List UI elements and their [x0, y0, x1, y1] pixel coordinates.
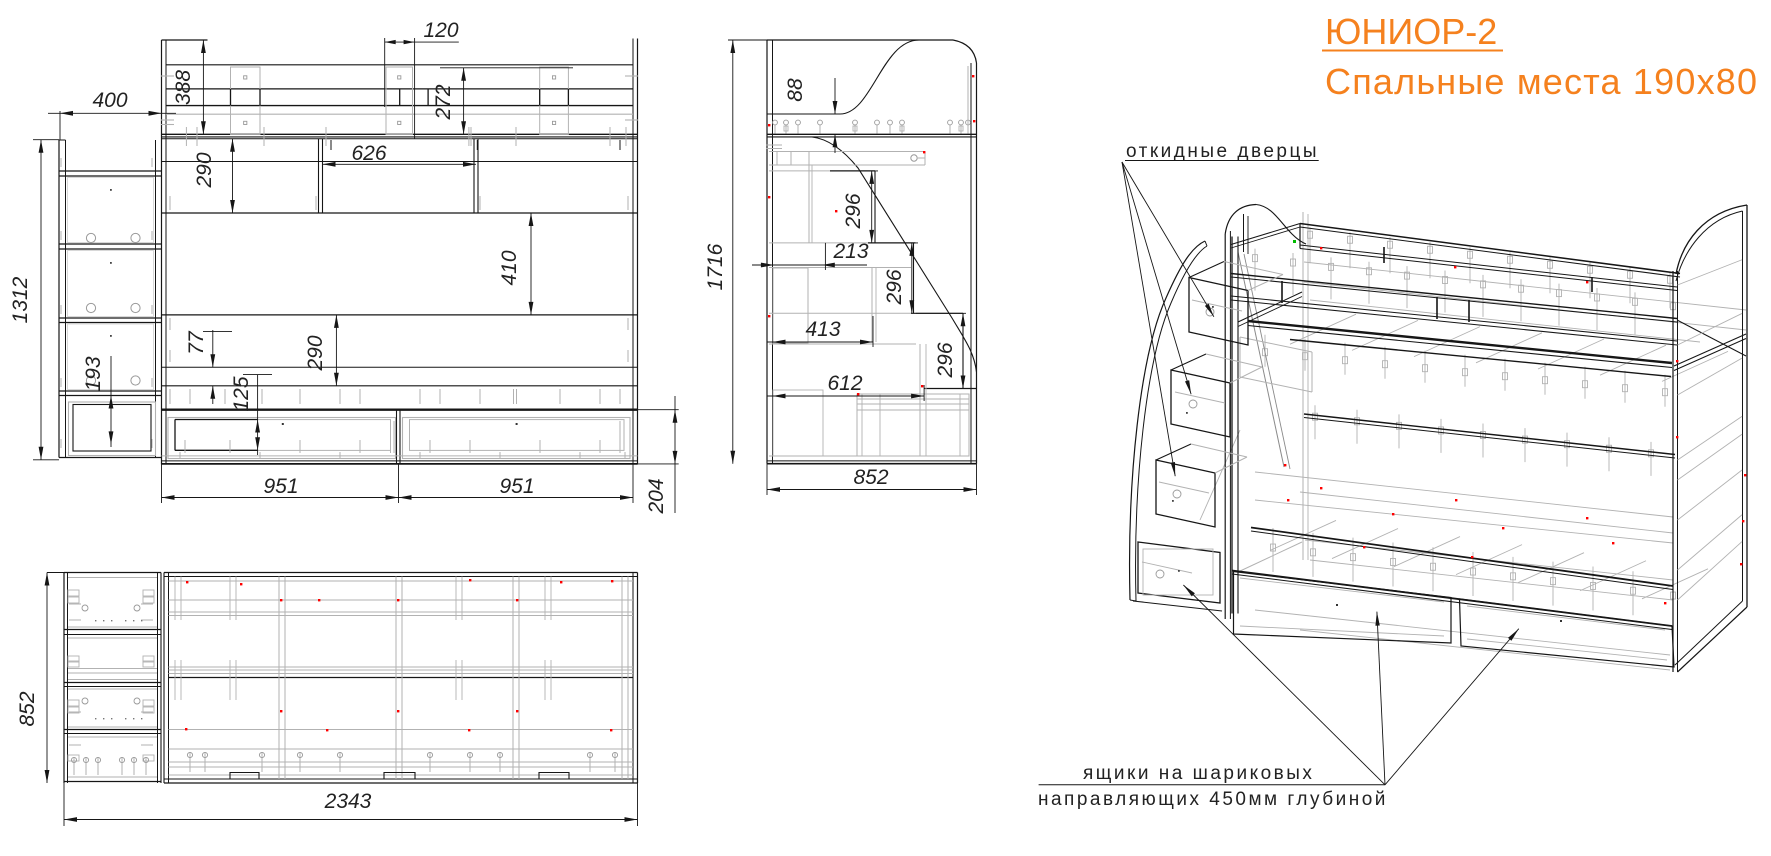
- svg-text:213: 213: [832, 240, 868, 263]
- svg-text:88: 88: [784, 78, 807, 102]
- svg-text:Спальные места 190х80: Спальные места 190х80: [1325, 61, 1758, 102]
- svg-text:400: 400: [92, 89, 127, 112]
- svg-text:193: 193: [82, 356, 105, 391]
- svg-text:951: 951: [499, 475, 534, 498]
- svg-text:413: 413: [805, 318, 840, 341]
- svg-text:125: 125: [230, 376, 253, 411]
- svg-text:направляющих 450мм глубиной: направляющих 450мм глубиной: [1038, 789, 1388, 810]
- svg-text:1716: 1716: [704, 243, 727, 290]
- svg-text:2343: 2343: [324, 790, 372, 813]
- svg-text:290: 290: [304, 335, 327, 371]
- svg-text:951: 951: [263, 475, 298, 498]
- svg-text:290: 290: [193, 152, 216, 188]
- svg-text:296: 296: [934, 342, 957, 378]
- svg-text:ящики на шариковых: ящики на шариковых: [1083, 763, 1314, 784]
- svg-text:296: 296: [842, 193, 865, 229]
- svg-text:272: 272: [432, 84, 455, 120]
- svg-text:852: 852: [853, 466, 888, 489]
- svg-text:1312: 1312: [9, 276, 32, 323]
- svg-text:ЮНИОР-2: ЮНИОР-2: [1325, 11, 1497, 52]
- svg-text:388: 388: [172, 70, 195, 105]
- svg-text:410: 410: [498, 250, 521, 285]
- svg-text:77: 77: [185, 330, 208, 355]
- svg-text:204: 204: [645, 478, 668, 514]
- svg-text:626: 626: [351, 142, 386, 165]
- svg-text:852: 852: [16, 691, 39, 726]
- svg-text:296: 296: [883, 269, 906, 305]
- svg-text:120: 120: [423, 19, 458, 42]
- svg-text:откидные дверцы: откидные дверцы: [1126, 141, 1319, 162]
- svg-text:612: 612: [827, 372, 862, 395]
